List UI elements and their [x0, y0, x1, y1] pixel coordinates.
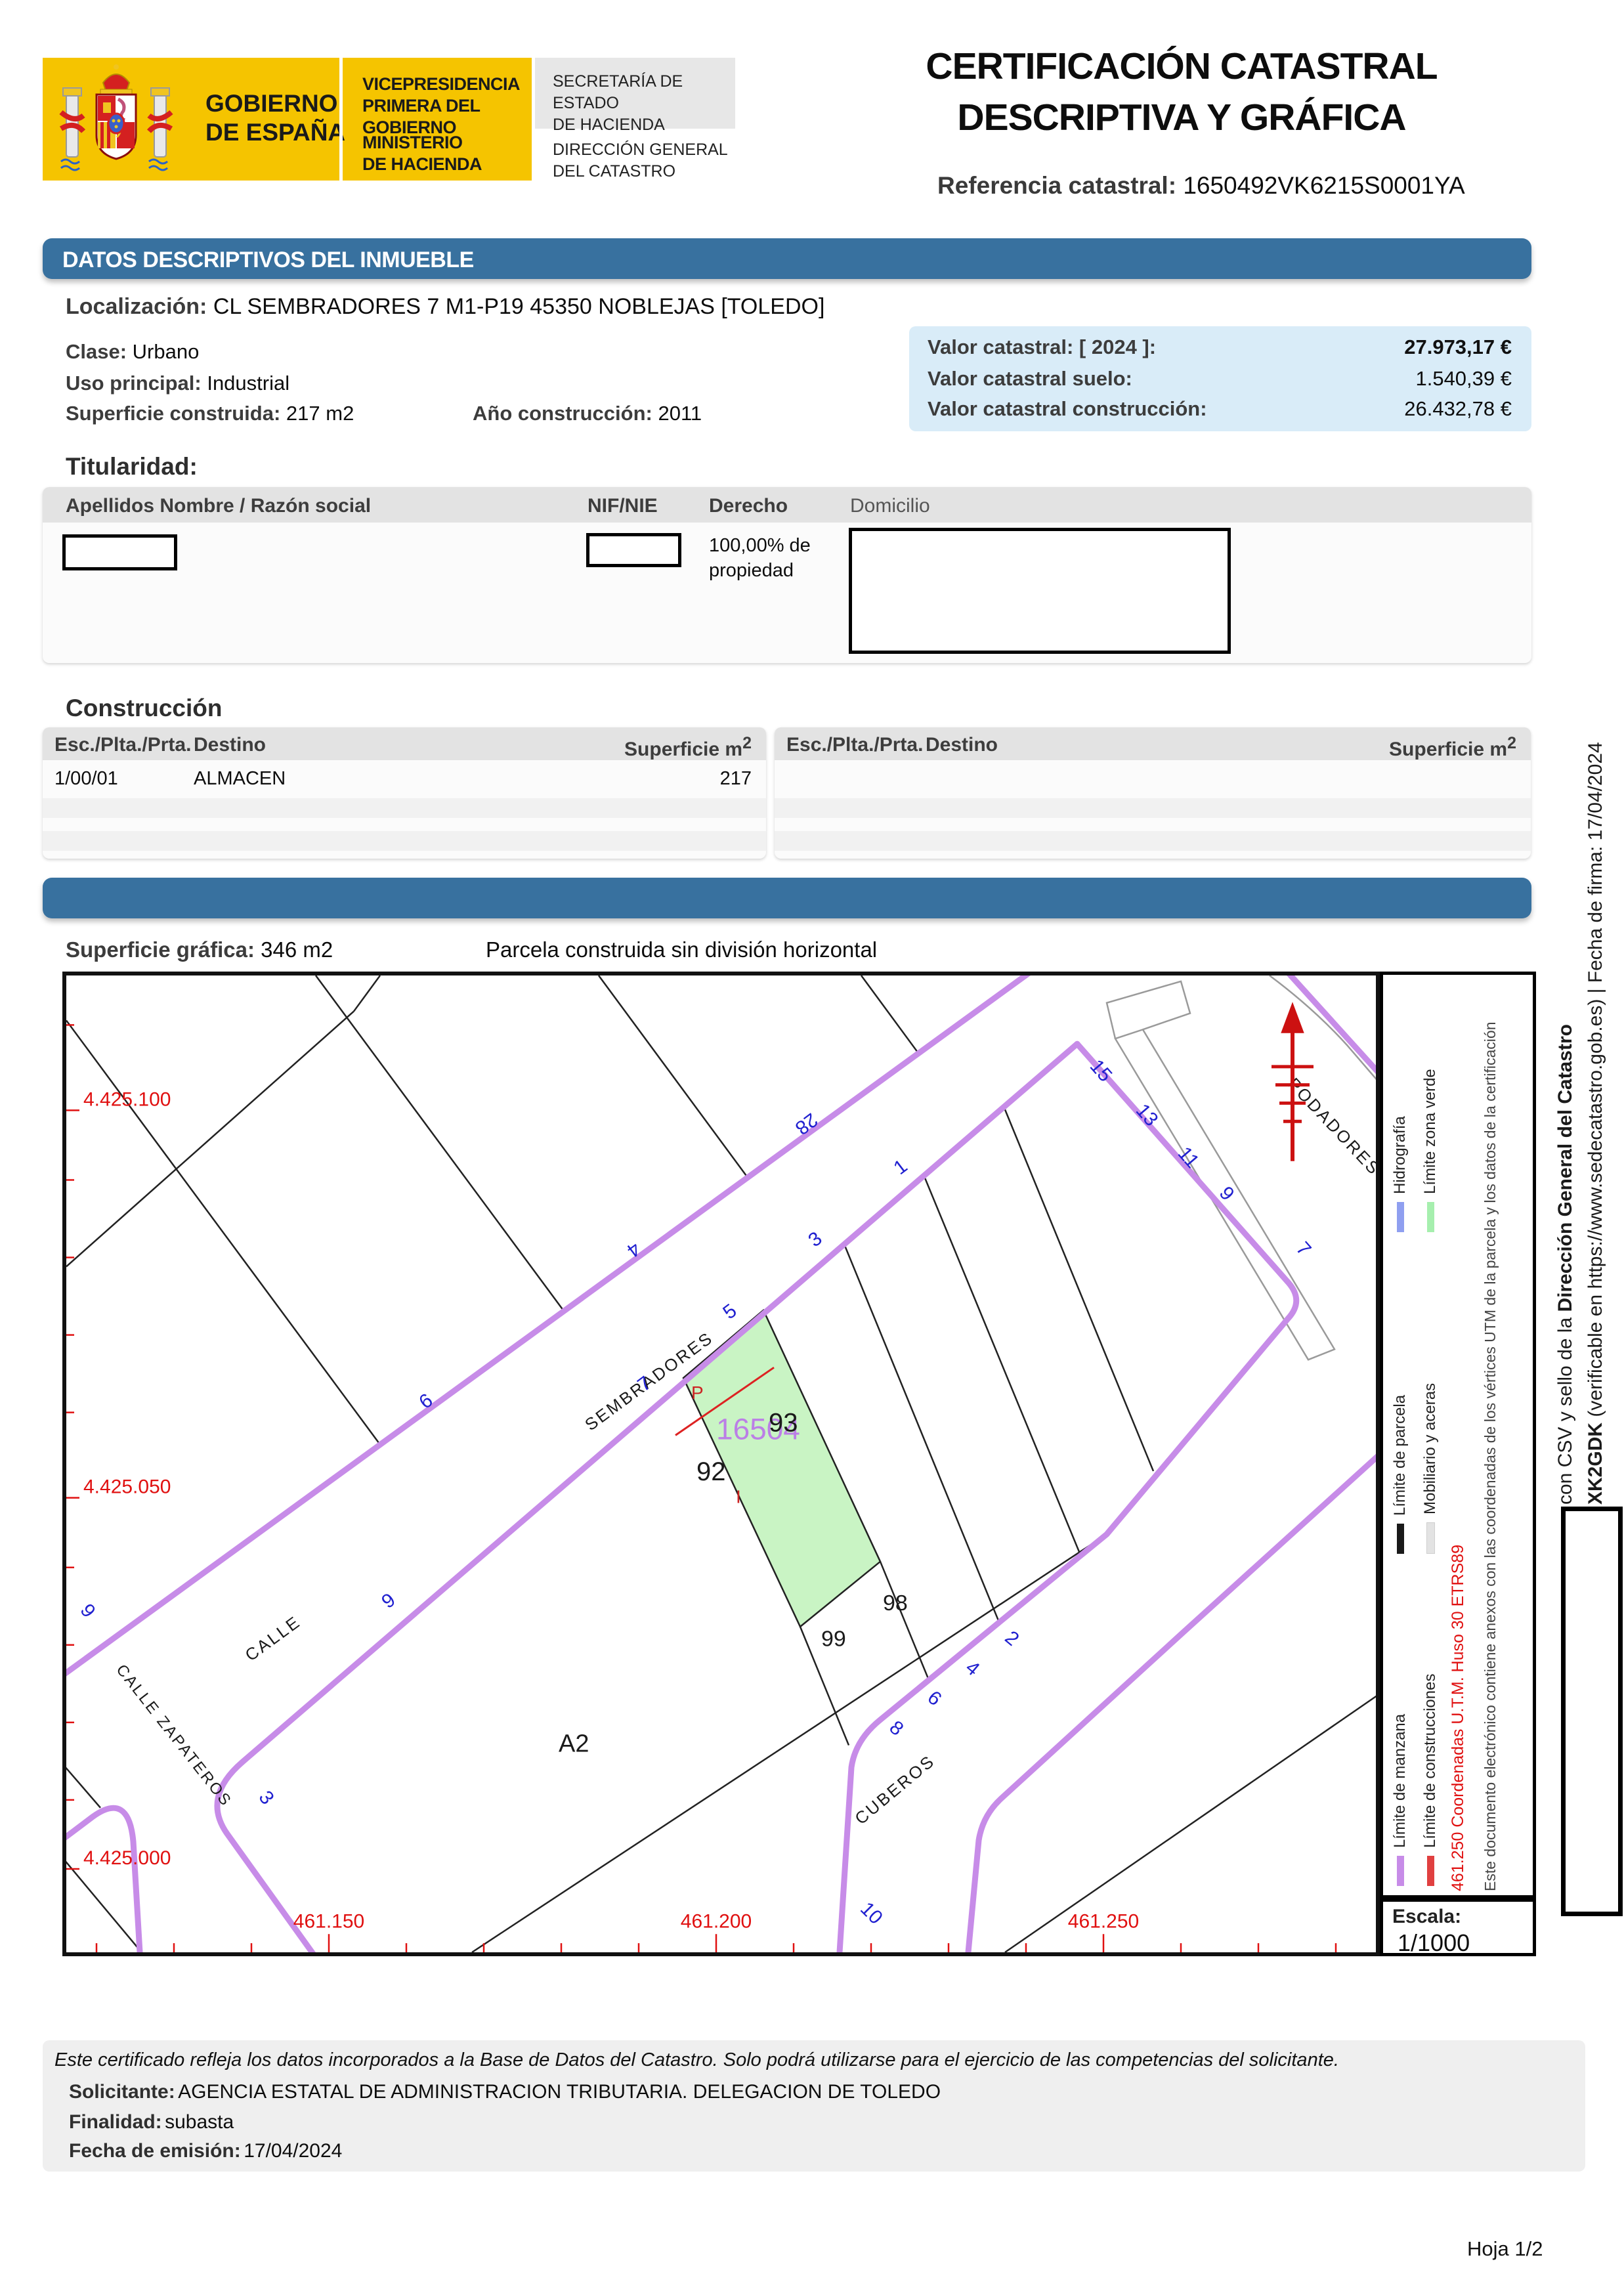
clase-row: Clase: Urbano [66, 340, 199, 364]
signature-dgc-bold: Dirección General del Catastro [1554, 1024, 1576, 1312]
house-7b: 7 [1292, 1238, 1315, 1260]
finalidad-label: Finalidad: [69, 2111, 162, 2133]
legend-item-construcciones: Límite de construcciones [1421, 1674, 1440, 1886]
coord-y-4425100: 4.425.100 [83, 1089, 171, 1111]
secretaria-line1: SECRETARÍA DE ESTADO [553, 71, 735, 114]
superficie-grafica-row: Superficie gráfica: 346 m2 [66, 937, 333, 962]
valor-total-row: Valor catastral: [ 2024 ]: 27.973,17 € [928, 335, 1512, 359]
superficie-construida-value: 217 m2 [286, 402, 354, 425]
coord-x-461200: 461.200 [681, 1910, 752, 1932]
col-destino: Destino [926, 734, 998, 756]
construcciones-swatch-icon [1427, 1856, 1434, 1886]
titularidad-title: Titularidad: [66, 453, 198, 481]
stripe [775, 798, 1531, 818]
street-calle: CALLE [242, 1612, 305, 1665]
section-bar-datos-title: DATOS DESCRIPTIVOS DEL INMUEBLE [43, 238, 1531, 273]
solicitante-label: Solicitante: [69, 2081, 175, 2103]
parcel-99: 99 [821, 1627, 846, 1652]
escala-label: Escala: [1392, 1906, 1461, 1928]
stripe [43, 798, 766, 818]
uso-label: Uso principal: [66, 372, 202, 395]
valor-construccion-label: Valor catastral construcción: [928, 397, 1207, 420]
valor-label: Valor catastral: [928, 335, 1073, 358]
house-10: 10 [856, 1898, 887, 1929]
row-destino: ALMACEN [194, 768, 286, 790]
construccion-table-left: Esc./Plta./Prta. Destino Superficie m2 1… [43, 727, 766, 859]
parcel-98: 98 [883, 1591, 908, 1616]
coord-x-461150: 461.150 [293, 1910, 364, 1932]
derecho-value: 100,00% de propiedad [709, 533, 811, 583]
valor-construccion-row: Valor catastral construcción: 26.432,78 … [928, 397, 1512, 421]
anio-value: 2011 [658, 402, 702, 425]
street-zapateros: CALLE ZAPATEROS [112, 1661, 235, 1810]
legend-row-1: Límite de manzana Límite de parcela Hidr… [1386, 975, 1416, 1895]
title-line2: DESCRIPTIVA Y GRÁFICA [827, 92, 1536, 143]
referencia-value: 1650492VK6215S0001YA [1183, 172, 1464, 199]
titularidad-header: Apellidos Nombre / Razón social NIF/NIE … [43, 487, 1531, 523]
house-8: 8 [885, 1717, 907, 1740]
footer-box: Este certificado refleja los datos incor… [43, 2040, 1585, 2172]
coord-y-4425000: 4.425.000 [83, 1847, 171, 1869]
map-svg: 4.425.100 4.425.050 4.425.000 461.150 46… [66, 975, 1376, 1952]
uso-row: Uso principal: Industrial [66, 372, 289, 395]
legend-item-parcela: Límite de parcela [1391, 1395, 1409, 1554]
fecha-emision-label: Fecha de emisión: [69, 2140, 241, 2162]
finalidad-value: subasta [165, 2111, 234, 2133]
escala-value: 1/1000 [1398, 1929, 1470, 1957]
house-11: 11 [1174, 1143, 1203, 1172]
gobierno-logo-block: GOBIERNO DE ESPAÑA VICEPRESIDENCIA PRIME… [43, 58, 532, 181]
legend-note: Este documento electrónico contiene anex… [1482, 1022, 1499, 1892]
ministerio-line2: DE HACIENDA [362, 154, 482, 175]
title-line1: CERTIFICACIÓN CATASTRAL [827, 41, 1536, 92]
signature-csv-text: con CSV y sello de la [1554, 1312, 1576, 1505]
valor-suelo-row: Valor catastral suelo: 1.540,39 € [928, 367, 1512, 391]
anio-construccion-row: Año construcción: 2011 [473, 402, 702, 425]
superficie-construida-row: Superficie construida: 217 m2 [66, 402, 354, 425]
mobiliario-swatch-icon [1426, 1522, 1435, 1554]
house-numbers: 28 4 9 1 3 5 7 9 9 3 10 15 13 11 9 7 2 4… [75, 1056, 1315, 1929]
legend-item-hidrografia: Hidrografía [1391, 1116, 1409, 1232]
construccion-header-left: Esc./Plta./Prta. Destino Superficie m2 [43, 727, 766, 760]
col-superficie: Superficie m2 [1389, 734, 1516, 761]
direccion-line2: DEL CATASTRO [553, 161, 728, 182]
localizacion-label: Localización: [66, 294, 207, 319]
secretaria-box: SECRETARÍA DE ESTADO DE HACIENDA [535, 58, 735, 129]
document-title: CERTIFICACIÓN CATASTRAL DESCRIPTIVA Y GR… [827, 41, 1536, 143]
col-nif: NIF/NIE [588, 495, 658, 517]
signature-verify-text: (verificable en https://www.sedecatastro… [1585, 742, 1606, 1423]
signature-csv-code: XK2GDK [1585, 1423, 1606, 1505]
valor-suelo: 1.540,39 € [1415, 367, 1512, 391]
map-legend-panel: Límite de manzana Límite de parcela Hidr… [1380, 972, 1536, 1898]
localizacion-row: Localización: CL SEMBRADORES 7 M1-P19 45… [66, 294, 824, 320]
col-superficie: Superficie m2 [624, 734, 752, 761]
legend-item-zonaverde: Límite zona verde [1421, 1069, 1440, 1232]
house-9a: 9 [414, 1388, 436, 1412]
redacted-nif [586, 533, 681, 567]
coord-y-4425050: 4.425.050 [83, 1476, 171, 1498]
col-derecho: Derecho [709, 495, 788, 517]
direccion-line1: DIRECCIÓN GENERAL [553, 139, 728, 161]
footer-finalidad-row: Finalidad: subasta [69, 2111, 234, 2133]
section-bar-datos: DATOS DESCRIPTIVOS DEL INMUEBLE [43, 238, 1531, 279]
vicepresidencia-line1: VICEPRESIDENCIA [362, 74, 532, 95]
manzana-swatch-icon [1397, 1856, 1404, 1886]
spain-coat-of-arms-icon [54, 63, 196, 176]
house-4b: 4 [961, 1657, 983, 1681]
gobierno-line1: GOBIERNO [205, 89, 345, 118]
house-28: 28 [791, 1109, 822, 1139]
valor-year: [ 2024 ]: [1079, 335, 1156, 358]
derecho-line1: 100,00% de [709, 533, 811, 558]
parcel-93: 93 [769, 1409, 798, 1438]
col-esc: Esc./Plta./Prta. [54, 734, 191, 756]
direccion-catastro-text: DIRECCIÓN GENERAL DEL CATASTRO [553, 139, 728, 182]
section-bar-parcela [43, 878, 1531, 918]
footer-fecha-row: Fecha de emisión: 17/04/2024 [69, 2140, 342, 2162]
valor-construccion: 26.432,78 € [1404, 397, 1512, 421]
derecho-line2: propiedad [709, 558, 811, 583]
uso-value: Industrial [207, 372, 289, 395]
certificate-page: GOBIERNO DE ESPAÑA VICEPRESIDENCIA PRIME… [0, 0, 1624, 2293]
fecha-emision-value: 17/04/2024 [244, 2140, 342, 2162]
footer-aviso: Este certificado refleja los datos incor… [54, 2049, 1339, 2071]
referencia-catastral: Referencia catastral: 1650492VK6215S0001… [937, 172, 1465, 200]
zonaverde-swatch-icon [1427, 1202, 1434, 1232]
clase-label: Clase: [66, 340, 127, 363]
hidrografia-swatch-icon [1397, 1202, 1404, 1232]
coord-x-461250: 461.250 [1068, 1910, 1139, 1932]
building-outline [1107, 975, 1376, 1360]
solicitante-value: AGENCIA ESTATAL DE ADMINISTRACION TRIBUT… [178, 2081, 941, 2103]
legend-item-mobiliario: Mobiliario y aceras [1421, 1383, 1440, 1554]
parcel-use-p: P [691, 1382, 704, 1403]
logo-divider [339, 58, 343, 181]
cadastral-map: 4.425.100 4.425.050 4.425.000 461.150 46… [62, 972, 1380, 1956]
parcel-a2: A2 [559, 1730, 589, 1758]
house-3a: 3 [804, 1228, 826, 1251]
referencia-label: Referencia catastral: [937, 172, 1176, 199]
coordinate-labels: 4.425.100 4.425.050 4.425.000 461.150 46… [83, 1089, 1139, 1933]
col-apellidos: Apellidos Nombre / Razón social [66, 495, 371, 517]
ministerio-text: MINISTERIO DE HACIENDA [362, 132, 482, 175]
valor-suelo-label: Valor catastral suelo: [928, 367, 1132, 390]
house-9c: 9 [75, 1600, 99, 1621]
superficie-grafica-label: Superficie gráfica: [66, 937, 255, 962]
construccion-title: Construcción [66, 695, 222, 722]
legend-row-2: Límite de construcciones Mobiliario y ac… [1416, 975, 1446, 1895]
secretaria-line2: DE HACIENDA [553, 114, 735, 136]
legend-utm-line: 461.250 Coordenadas U.T.M. Huso 30 ETRS8… [1449, 1545, 1468, 1891]
redacted-domicilio [849, 528, 1231, 654]
house-9b: 9 [377, 1589, 399, 1613]
parcela-swatch-icon [1397, 1524, 1404, 1554]
parcel-92: 92 [696, 1457, 725, 1486]
street-cuberos: CUBEROS [852, 1751, 939, 1828]
legend-rotated-strip: Límite de manzana Límite de parcela Hidr… [1383, 975, 1533, 1895]
house-5: 5 [719, 1300, 740, 1323]
valor-catastral-box: Valor catastral: [ 2024 ]: 27.973,17 € V… [909, 326, 1531, 431]
row-superficie: 217 [720, 768, 752, 790]
house-13: 13 [1132, 1100, 1163, 1130]
signature-line-2: XK2GDK (verificable en https://www.sedec… [1585, 481, 1607, 1505]
stripe [775, 831, 1531, 851]
col-destino: Destino [194, 734, 266, 756]
construccion-header-right: Esc./Plta./Prta. Destino Superficie m2 [775, 727, 1531, 760]
redacted-csv-box [1561, 1507, 1623, 1916]
superficie-construida-label: Superficie construida: [66, 402, 280, 425]
north-arrow-icon [1271, 1003, 1314, 1161]
house-2: 2 [1000, 1627, 1023, 1650]
localizacion-value: CL SEMBRADORES 7 M1-P19 45350 NOBLEJAS [… [213, 294, 825, 319]
parcel-use-i: I [736, 1487, 741, 1507]
ministerio-line1: MINISTERIO [362, 132, 482, 154]
escala-box: Escala: 1/1000 [1380, 1898, 1536, 1956]
gobierno-line2: DE ESPAÑA [205, 118, 345, 147]
parcela-nota: Parcela construida sin división horizont… [486, 937, 877, 962]
vicepresidencia-text: VICEPRESIDENCIA PRIMERA DEL GOBIERNO [362, 74, 532, 139]
valor-total: 27.973,17 € [1404, 335, 1512, 359]
construccion-table-right: Esc./Plta./Prta. Destino Superficie m2 [775, 727, 1531, 859]
house-6: 6 [923, 1686, 945, 1710]
redacted-nombre [62, 534, 177, 570]
footer-solicitante-row: Solicitante: AGENCIA ESTATAL DE ADMINIST… [69, 2081, 941, 2103]
col-esc: Esc./Plta./Prta. [786, 734, 923, 756]
stripe [43, 831, 766, 851]
house-4: 4 [622, 1237, 644, 1261]
signature-line-1: con CSV y sello de la Dirección General … [1554, 677, 1577, 1505]
anio-label: Año construcción: [473, 402, 652, 425]
legend-item-manzana: Límite de manzana [1391, 1714, 1409, 1886]
house-3b: 3 [254, 1787, 278, 1809]
clase-value: Urbano [133, 340, 200, 363]
street-podadores: PODADORES [1284, 1075, 1376, 1179]
col-domicilio: Domicilio [850, 495, 930, 517]
superficie-grafica-value: 346 m2 [261, 937, 333, 962]
titularidad-table: Apellidos Nombre / Razón social NIF/NIE … [43, 487, 1531, 663]
row-esc: 1/00/01 [54, 768, 118, 790]
page-number: Hoja 1/2 [1467, 2237, 1543, 2261]
house-1: 1 [889, 1155, 911, 1179]
gobierno-text: GOBIERNO DE ESPAÑA [205, 89, 345, 147]
